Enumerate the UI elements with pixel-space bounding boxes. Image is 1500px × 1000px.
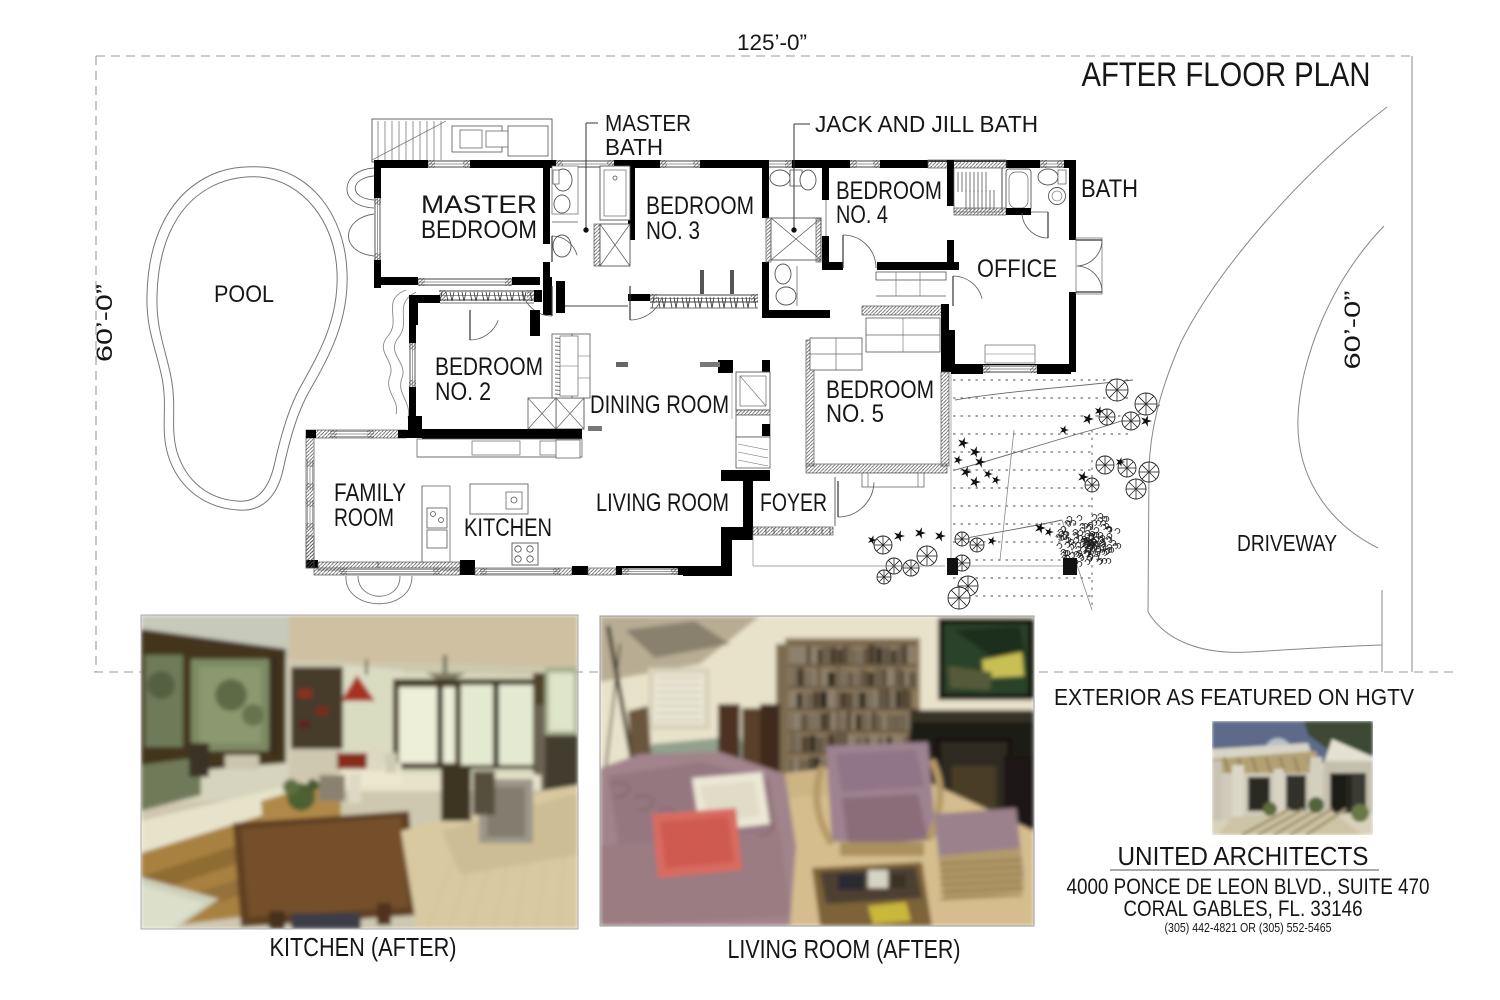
svg-text:UNITED ARCHITECTS: UNITED ARCHITECTS — [1118, 841, 1369, 871]
svg-text:125’-0”: 125’-0” — [737, 30, 807, 55]
svg-text:CORAL GABLES, FL. 33146: CORAL GABLES, FL. 33146 — [1124, 896, 1363, 921]
svg-text:OFFICE: OFFICE — [977, 255, 1057, 283]
svg-text:60’-0”: 60’-0” — [1340, 291, 1365, 370]
svg-text:KITCHEN: KITCHEN — [464, 514, 552, 542]
svg-text:BEDROOM: BEDROOM — [646, 192, 754, 220]
svg-text:BEDROOM: BEDROOM — [435, 353, 543, 381]
svg-text:MASTER: MASTER — [605, 110, 691, 136]
svg-text:MASTER: MASTER — [421, 191, 537, 219]
svg-text:LIVING ROOM: LIVING ROOM — [596, 489, 729, 517]
svg-text:POOL: POOL — [214, 281, 274, 308]
svg-text:NO. 2: NO. 2 — [435, 378, 491, 406]
svg-text:60’-0”: 60’-0” — [92, 284, 117, 362]
svg-text:KITCHEN (AFTER): KITCHEN (AFTER) — [270, 932, 457, 962]
svg-text:FOYER: FOYER — [760, 489, 827, 517]
svg-text:JACK AND JILL BATH: JACK AND JILL BATH — [815, 111, 1038, 137]
svg-text:LIVING ROOM (AFTER): LIVING ROOM (AFTER) — [728, 934, 961, 964]
svg-text:DRIVEWAY: DRIVEWAY — [1237, 530, 1337, 556]
svg-text:BATH: BATH — [605, 134, 663, 160]
svg-text:(305) 442-4821 OR (305) 552-54: (305) 442-4821 OR (305) 552-5465 — [1165, 921, 1332, 935]
svg-text:BATH: BATH — [1081, 175, 1138, 203]
svg-text:EXTERIOR AS FEATURED ON HGTV: EXTERIOR AS FEATURED ON HGTV — [1054, 684, 1415, 710]
svg-text:NO. 4: NO. 4 — [836, 201, 888, 229]
svg-text:DINING ROOM: DINING ROOM — [590, 391, 729, 419]
svg-text:ROOM: ROOM — [334, 504, 394, 532]
svg-text:BEDROOM: BEDROOM — [421, 216, 537, 244]
svg-text:FAMILY: FAMILY — [334, 479, 406, 507]
svg-text:NO. 5: NO. 5 — [826, 400, 884, 428]
svg-text:NO. 3: NO. 3 — [646, 217, 700, 245]
svg-text:AFTER FLOOR PLAN: AFTER FLOOR PLAN — [1082, 56, 1371, 94]
